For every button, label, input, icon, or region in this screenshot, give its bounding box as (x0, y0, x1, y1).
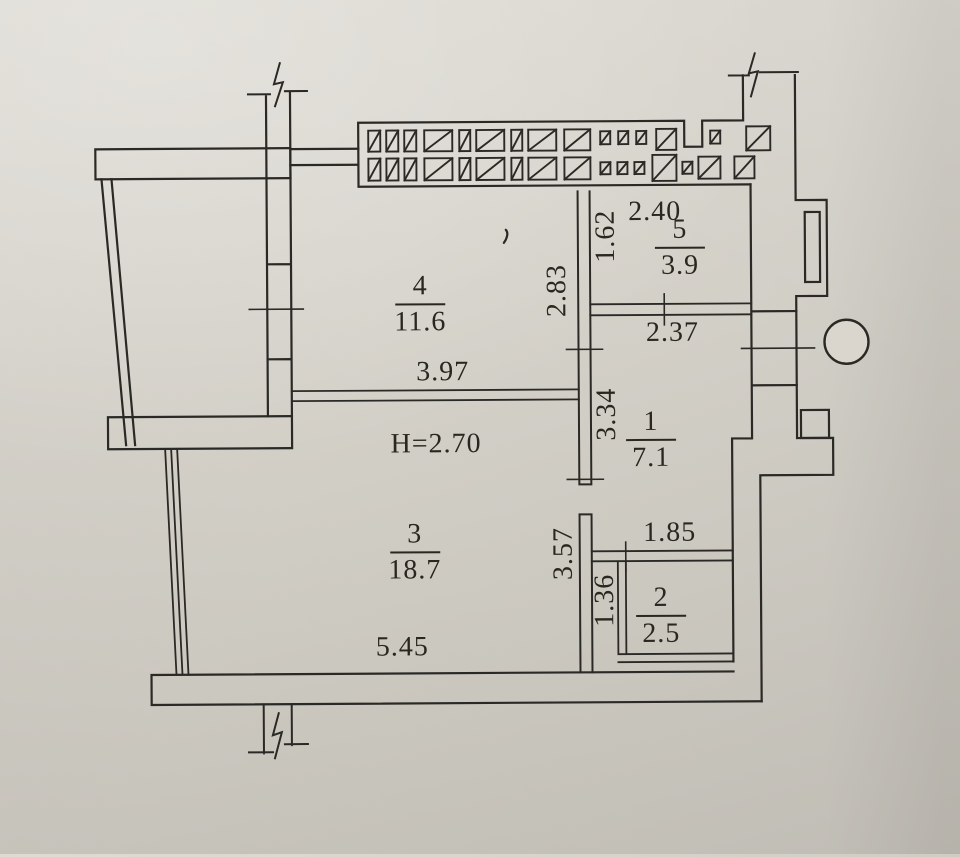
ink-mark (504, 230, 508, 243)
room-label-1: 1 7.1 (626, 408, 676, 472)
room2-area: 2.5 (636, 617, 686, 648)
room3-number: 3 (390, 520, 440, 553)
room5-number: 5 (655, 216, 705, 249)
dim-room1-height: 3.34 (593, 388, 621, 441)
ceiling-height-note: Н=2.70 (391, 430, 482, 459)
balcony (95, 148, 292, 449)
room1-area: 7.1 (626, 441, 676, 472)
hatched-wall-cells (368, 126, 770, 182)
dim-room5-height: 1.62 (592, 210, 620, 263)
wall-break-symbol-bottom (249, 704, 308, 758)
left-wall (266, 93, 360, 417)
room4-room3-wall (292, 389, 579, 401)
dim-room4-width: 3.97 (416, 358, 469, 386)
wall-step-block (801, 410, 829, 438)
room1-number: 1 (626, 408, 676, 441)
dim-room1-width: 2.37 (646, 319, 699, 347)
wall-niche-inner (805, 212, 820, 282)
wall-break-symbol-top-right (729, 53, 798, 96)
dim-room4-height: 2.83 (543, 264, 571, 317)
room5-area: 3.9 (655, 249, 705, 280)
room-label-4: 4 11.6 (394, 272, 446, 336)
bottom-wall (152, 671, 762, 705)
room4-area: 11.6 (394, 305, 446, 336)
dim-hallway-width: 1.85 (643, 519, 696, 547)
scanned-floor-plan-photo: { "plan": { "title": "apartment floor pl… (0, 0, 960, 854)
floor-plan: 2.40 1.62 2.83 2.37 3.97 3.34 Н=2.70 1.8… (0, 0, 960, 857)
room-label-5: 5 3.9 (655, 216, 705, 280)
circle-mark (824, 320, 868, 364)
dim-room3-height: 3.57 (550, 527, 578, 580)
room3-window-band (165, 449, 188, 675)
wall-break-symbol-top-left (248, 63, 307, 106)
dim-room2-height: 1.36 (591, 574, 619, 627)
room4-number: 4 (395, 272, 445, 305)
room2-number: 2 (636, 584, 686, 617)
room5-bottom-wall (590, 303, 751, 315)
room-label-2: 2 2.5 (636, 584, 686, 648)
right-wall (730, 75, 835, 702)
dim-room3-width: 5.45 (376, 633, 429, 661)
balcony-window-lines (101, 179, 135, 445)
dimension-ticks (249, 293, 816, 573)
room-label-3: 3 18.7 (388, 520, 441, 584)
room3-area: 18.7 (388, 553, 441, 584)
